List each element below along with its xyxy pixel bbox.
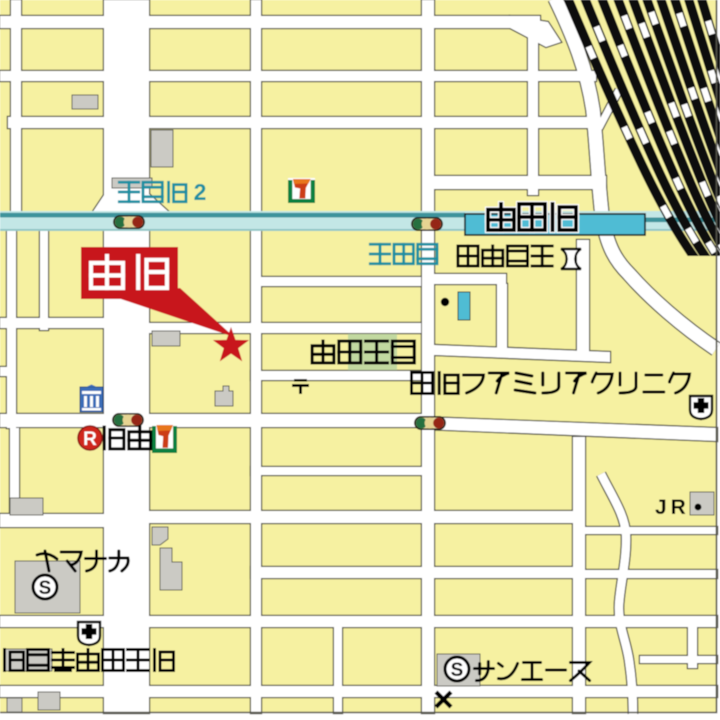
svg-text:S: S (451, 660, 464, 681)
svg-text:S: S (39, 578, 52, 599)
svg-text:JR: JR (655, 496, 690, 519)
svg-text:R: R (83, 429, 97, 450)
svg-text:2: 2 (194, 179, 207, 205)
